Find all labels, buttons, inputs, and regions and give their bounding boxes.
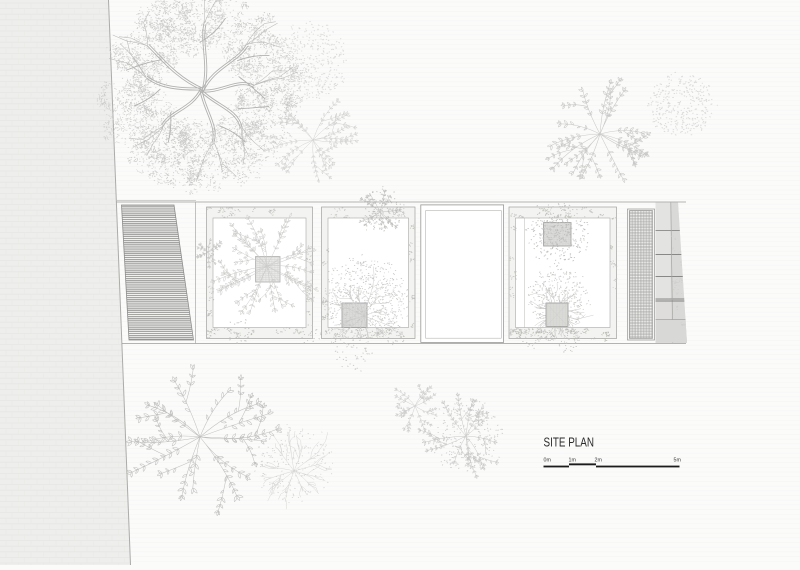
svg-text:SITE PLAN: SITE PLAN <box>544 436 595 450</box>
svg-text:0m: 0m <box>544 457 552 463</box>
svg-text:1m: 1m <box>569 457 577 463</box>
svg-text:5m: 5m <box>674 457 682 463</box>
svg-text:2m: 2m <box>595 457 603 463</box>
